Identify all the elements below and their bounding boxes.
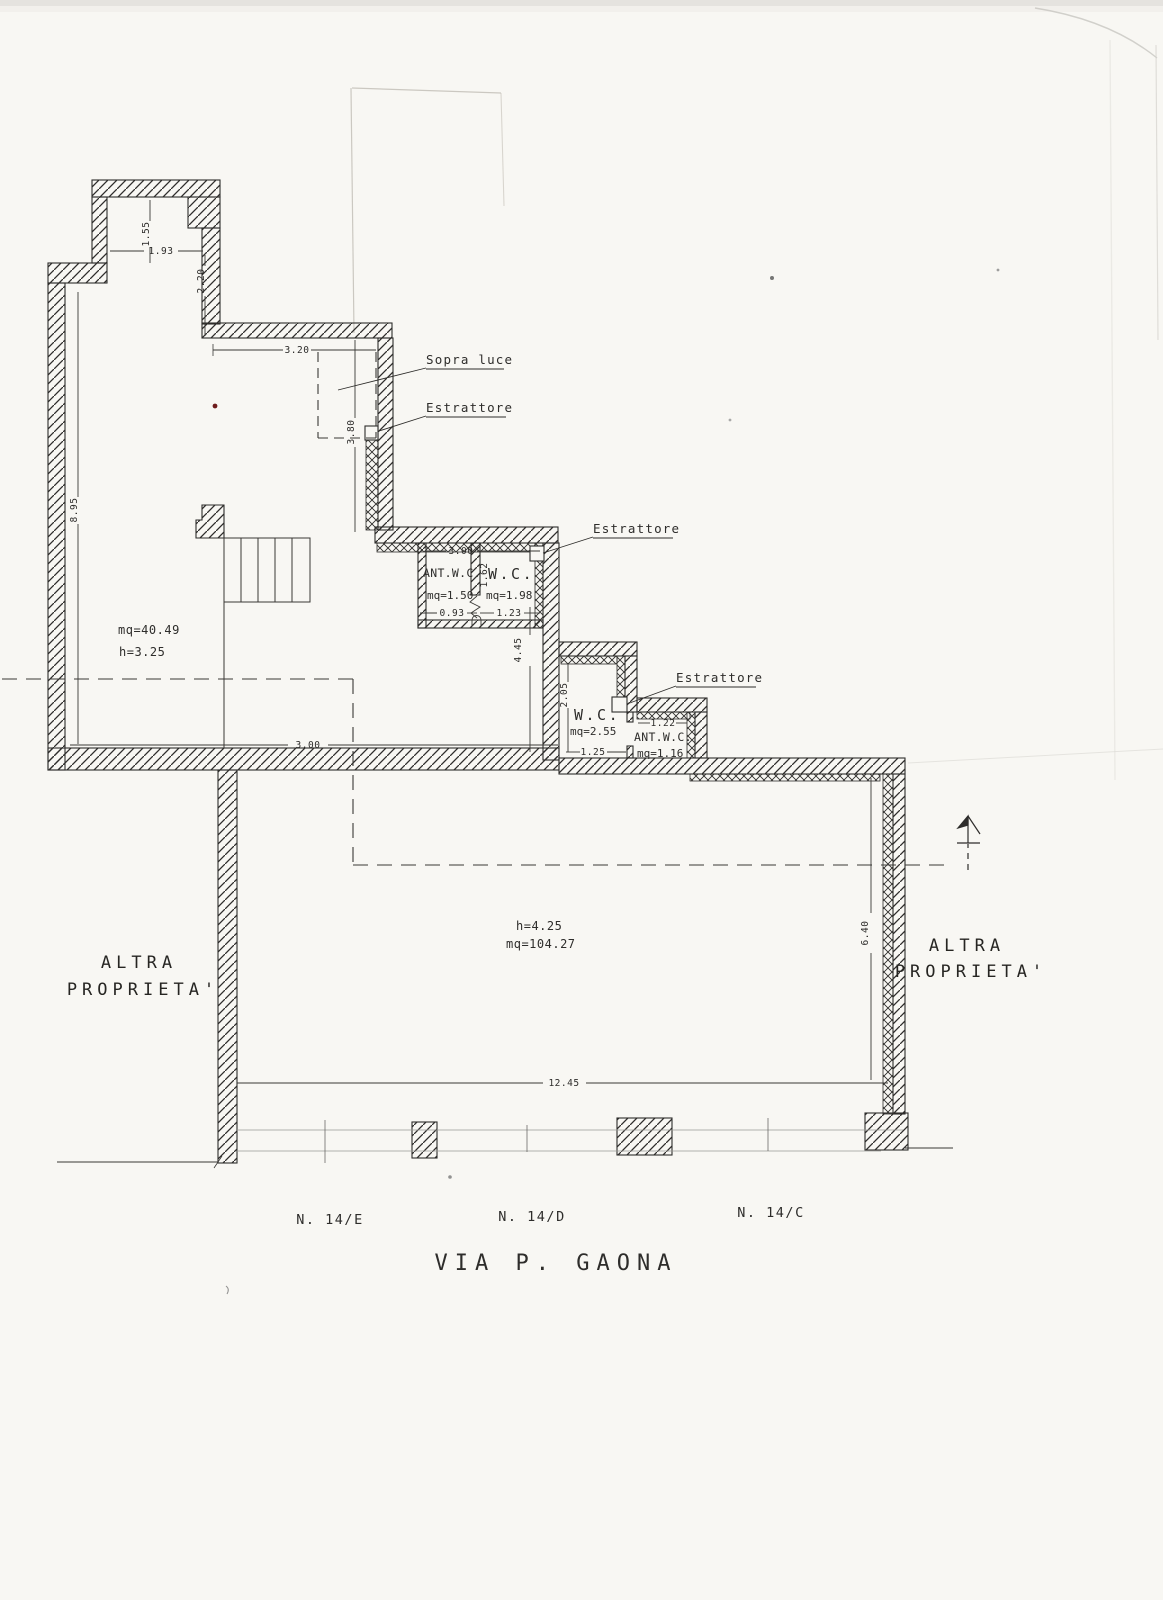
stairs-and-lines	[57, 538, 953, 1168]
dim-label: 3.20	[285, 345, 310, 356]
wall-left-main	[48, 283, 65, 770]
wall-left-boundary	[218, 770, 237, 1163]
wall-step-left	[48, 263, 107, 283]
estrattore-label: Estrattore	[676, 670, 763, 685]
dim-label: 3.00	[449, 546, 474, 557]
street-number: N. 14/C	[737, 1205, 804, 1221]
wall-wc2-top	[559, 642, 637, 656]
wall-wc1-right	[543, 543, 559, 760]
wall-step2-top	[637, 698, 707, 712]
red-ink-dot	[213, 404, 218, 409]
estrattore-label: Estrattore	[426, 400, 513, 415]
wall-corridor-right	[378, 338, 393, 530]
dim-label: 1.25	[581, 747, 606, 758]
altra-proprieta-left: ALTRA	[101, 953, 177, 973]
dim-label: 12.45	[548, 1078, 579, 1089]
street-pillar-small	[412, 1122, 437, 1158]
dim-label: 0.93	[440, 608, 465, 619]
room-area-label: mq=104.27	[506, 937, 576, 951]
street-number: N. 14/E	[296, 1212, 363, 1228]
room-height-label: h=4.25	[516, 919, 562, 933]
room-name-label: ANT.W.C.	[423, 566, 481, 580]
sopra-luce-label: Sopra luce	[426, 352, 513, 367]
walls	[48, 180, 908, 1163]
window-band	[561, 656, 617, 664]
staircase	[224, 538, 310, 602]
wall-antwc2-divider-stub	[627, 712, 633, 722]
room-area-label: mq=1.98	[486, 589, 532, 602]
dim-label: 1.22	[651, 718, 676, 729]
window-band	[883, 774, 893, 1114]
dim-label: 4.45	[513, 638, 524, 663]
wall-antwc2-divider-stub	[627, 746, 633, 758]
altra-proprieta-right: PROPRIETA'	[895, 962, 1047, 982]
room-area-label: mq=1.50	[427, 589, 473, 602]
street-labels: N. 14/E N. 14/D N. 14/C VIA P. GAONA	[296, 1205, 804, 1276]
wall-wc1-left	[418, 543, 426, 628]
wall-alcove-top	[92, 180, 220, 197]
north-arrow-icon	[957, 816, 980, 870]
room-area-label: mq=40.49	[118, 623, 180, 637]
room-name-label: W.C.	[488, 565, 534, 583]
estrattore-label: Estrattore	[593, 521, 680, 536]
dim-label: 3.80	[346, 420, 357, 445]
wall-alcove-right-upper	[188, 197, 220, 228]
dim-label: 3.00	[296, 740, 321, 751]
wall-alcove-left	[92, 197, 107, 263]
dimensions	[70, 200, 888, 1083]
room-name-label: W.C.	[574, 706, 620, 724]
window-band	[366, 438, 378, 530]
dashed-lines	[2, 352, 947, 865]
wall-wc1-top	[375, 527, 558, 543]
extractor-box-icon	[530, 546, 544, 561]
street-number: N. 14/D	[498, 1209, 565, 1225]
wall-antwc2-right	[695, 712, 707, 758]
dim-label: 2.20	[196, 269, 207, 294]
wall-room-bottom	[48, 748, 559, 770]
wall-wc1-bottom	[418, 620, 543, 628]
street-arcade	[237, 1118, 903, 1163]
floor-plan-drawing: 1.55 1.93 2.20 3.20 3.80 8.95 3.00 3.00 …	[0, 0, 1163, 1600]
wall-corridor-top	[202, 323, 392, 338]
room-area-label: mq=1.16	[637, 747, 683, 760]
room-area-label: mq=2.55	[570, 725, 616, 738]
street-name: VIA P. GAONA	[435, 1251, 678, 1276]
dim-label: 1.93	[149, 246, 174, 257]
room-name-label: ANT.W.C.	[634, 730, 692, 744]
wall-bottom-long	[559, 758, 905, 774]
dim-label: 8.95	[69, 498, 80, 523]
dim-label: 2.05	[559, 683, 570, 708]
altra-proprieta-right: ALTRA	[929, 936, 1005, 956]
wall-right-boundary	[893, 774, 905, 1114]
street-pillar-mid	[617, 1118, 672, 1155]
stair-pillar	[196, 505, 224, 538]
dim-label: 1.55	[141, 222, 152, 247]
dim-label: 6.40	[860, 921, 871, 946]
window-band	[690, 774, 880, 781]
altra-proprieta-left: PROPRIETA'	[67, 980, 219, 1000]
room-height-label: h=3.25	[119, 645, 165, 659]
floor-plan-sheet: 1.55 1.93 2.20 3.20 3.80 8.95 3.00 3.00 …	[0, 0, 1163, 1600]
street-pillar-right	[865, 1113, 908, 1150]
dim-label: 1.23	[497, 608, 522, 619]
